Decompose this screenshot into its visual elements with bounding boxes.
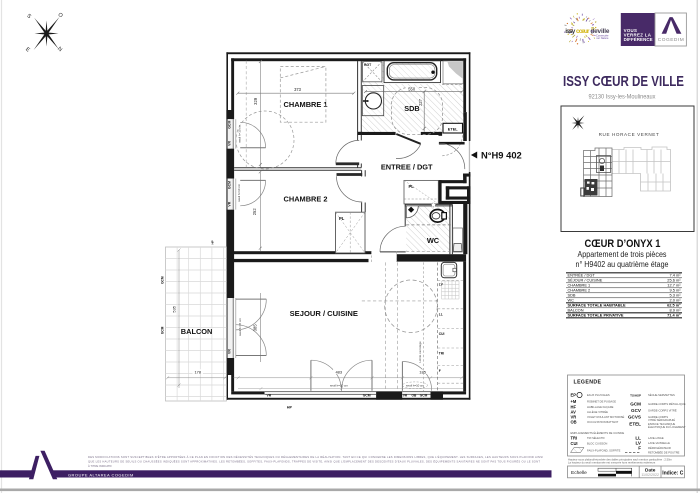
svg-text:HABILLAGE FAÇADE: HABILLAGE FAÇADE xyxy=(587,405,614,409)
svg-text:BALCON: BALCON xyxy=(181,327,213,336)
svg-text:Limite carrelage: Limite carrelage xyxy=(418,341,422,363)
svg-text:ETEL: ETEL xyxy=(448,126,459,131)
svg-text:92130 Issy-les-Moulineaux: 92130 Issy-les-Moulineaux xyxy=(589,94,657,101)
svg-text:issy: issy xyxy=(565,28,575,35)
svg-text:VR: VR xyxy=(228,201,232,206)
svg-text:329: 329 xyxy=(253,97,258,105)
svg-text:Appartement de trois pièces: Appartement de trois pièces xyxy=(578,250,667,259)
svg-text:DIFFÉRENCE: DIFFÉRENCE xyxy=(624,37,653,42)
svg-text:Indice: C: Indice: C xyxy=(662,470,684,476)
svg-text:DES MODIFICATIONS SONT SUSCEPT: DES MODIFICATIONS SONT SUSCEPTIBLES D’ÊT… xyxy=(88,454,543,459)
svg-text:À TITRE INDICATIF: À TITRE INDICATIF xyxy=(88,464,112,468)
svg-text:SEJOUR / CUISINE: SEJOUR / CUISINE xyxy=(290,309,358,318)
svg-text:483: 483 xyxy=(335,370,342,375)
svg-text:+M: +M xyxy=(571,399,577,404)
svg-text:71.4 m²: 71.4 m² xyxy=(667,313,681,318)
svg-text:373: 373 xyxy=(294,87,302,92)
svg-text:PL: PL xyxy=(409,184,415,189)
svg-text:seuil h=10 cm: seuil h=10 cm xyxy=(237,183,241,202)
svg-text:385: 385 xyxy=(252,324,257,332)
svg-text:SDB: SDB xyxy=(404,104,419,113)
svg-text:RUE HORACE VERNET: RUE HORACE VERNET xyxy=(599,132,660,137)
svg-text:OB: OB xyxy=(571,419,577,424)
svg-text:CHAMBRE 2: CHAMBRE 2 xyxy=(284,194,328,203)
svg-text:VR: VR xyxy=(403,394,408,398)
svg-text:GROUPE ALTAREA COGEDIM: GROUPE ALTAREA COGEDIM xyxy=(68,472,134,477)
svg-text:HP: HP xyxy=(211,240,215,244)
svg-text:E: E xyxy=(24,47,31,54)
svg-text:n° H9402 au quatrième étage: n° H9402 au quatrième étage xyxy=(576,260,669,269)
svg-text:EP: EP xyxy=(571,393,577,398)
svg-text:CUI: CUI xyxy=(571,441,578,446)
svg-text:sur Nature: sur Nature xyxy=(596,36,609,40)
svg-text:QUE LES HAUTEURS DE SEUILS OU: QUE LES HAUTEURS DE SEUILS OU CHAUSSÉES … xyxy=(88,459,540,464)
svg-text:GCM: GCM xyxy=(160,276,164,284)
svg-text:ROBINET DE PUISAGE: ROBINET DE PUISAGE xyxy=(587,399,616,403)
svg-text:S: S xyxy=(25,13,32,20)
svg-text:CHAMBRE 1: CHAMBRE 1 xyxy=(284,100,328,109)
svg-text:cœur: cœur xyxy=(576,28,590,35)
svg-text:TS/HSP: TS/HSP xyxy=(630,394,641,398)
svg-text:185: 185 xyxy=(419,370,426,375)
svg-text:O: O xyxy=(56,12,64,20)
svg-text:CUI: CUI xyxy=(439,332,445,336)
svg-text:ISSY CŒUR DE VILLE: ISSY CŒUR DE VILLE xyxy=(563,73,684,90)
svg-text:RGT: RGT xyxy=(364,63,372,67)
svg-text:LL: LL xyxy=(635,435,641,440)
svg-text:OCCULTATION BATTANT: OCCULTATION BATTANT xyxy=(587,420,619,424)
svg-text:535: 535 xyxy=(171,305,176,312)
svg-text:178: 178 xyxy=(194,369,201,374)
svg-text:TRI: TRI xyxy=(571,435,578,440)
svg-text:LEGENDE: LEGENDE xyxy=(574,380,602,386)
svg-text:seuil h=10 cm: seuil h=10 cm xyxy=(406,384,425,388)
svg-text:LL: LL xyxy=(439,312,443,316)
svg-text:LAVE-LINGE: LAVE-LINGE xyxy=(648,436,664,440)
svg-text:ENTREE / DGT: ENTREE / DGT xyxy=(381,162,433,171)
svg-text:GCM: GCM xyxy=(420,394,428,398)
svg-text:ETEL: ETEL xyxy=(629,421,641,426)
svg-text:seuil h=15 cm: seuil h=15 cm xyxy=(238,317,242,336)
svg-text:OB: OB xyxy=(412,394,417,398)
svg-text:GCM: GCM xyxy=(160,326,164,334)
svg-text:seuil h=10 cm: seuil h=10 cm xyxy=(330,384,349,388)
svg-text:GCM: GCM xyxy=(630,402,641,407)
svg-text:F: F xyxy=(439,369,441,373)
svg-text:550: 550 xyxy=(408,86,416,91)
svg-text:N°H9 402: N°H9 402 xyxy=(481,150,522,161)
svg-text:FAUX-PLAFOND, SOFFITE: FAUX-PLAFOND, SOFFITE xyxy=(587,448,621,452)
svg-text:WC: WC xyxy=(427,236,440,245)
svg-text:252: 252 xyxy=(252,208,257,216)
svg-text:TRI: TRI xyxy=(439,352,444,356)
svg-text:F: F xyxy=(638,445,641,450)
svg-text:GCM: GCM xyxy=(228,181,232,189)
svg-text:BLOC CUISSON: BLOC CUISSON xyxy=(587,442,607,446)
svg-text:GCM: GCM xyxy=(228,121,232,129)
svg-text:VR: VR xyxy=(228,141,232,146)
svg-text:SURFACE TOTALE PRIVATIVE: SURFACE TOTALE PRIVATIVE xyxy=(568,313,624,318)
svg-text:PL: PL xyxy=(339,216,345,221)
svg-text:HP: HP xyxy=(287,406,293,410)
svg-text:LAVE-VAISSELLE: LAVE-VAISSELLE xyxy=(648,441,670,445)
svg-text:GCV: GCV xyxy=(631,408,642,413)
svg-text:CŒUR D’ONYX 1: CŒUR D’ONYX 1 xyxy=(585,238,661,250)
svg-text:11/02/2022: 11/02/2022 xyxy=(641,473,659,477)
svg-text:COGEDIM: COGEDIM xyxy=(658,37,684,43)
svg-text:Echelle: Echelle xyxy=(571,470,587,476)
svg-text:VR: VR xyxy=(228,349,232,354)
svg-text:La hauteur du seuil mentionnée: La hauteur du seuil mentionnée est mesur… xyxy=(568,461,656,465)
svg-text:GCVS: GCVS xyxy=(628,414,641,419)
svg-text:EAUX PLUVIALES: EAUX PLUVIALES xyxy=(587,393,610,397)
svg-text:GCM: GCM xyxy=(363,394,371,398)
svg-text:VR: VR xyxy=(267,394,272,398)
svg-text:Hauteur sous plafond/retombée: Hauteur sous plafond/retombée des dalles… xyxy=(568,457,673,461)
